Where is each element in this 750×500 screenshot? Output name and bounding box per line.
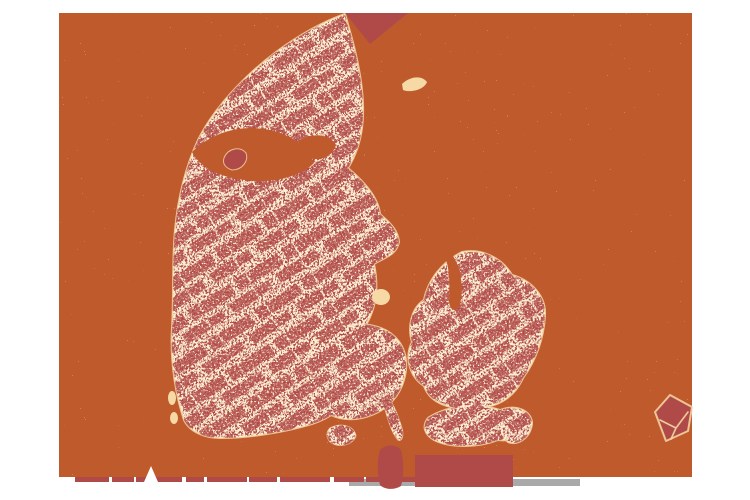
map-figure <box>0 0 750 500</box>
west-coast-islet <box>170 412 178 424</box>
german-coast-blob <box>378 446 404 489</box>
denmark-speckle-map <box>0 0 750 500</box>
samso-island <box>372 289 390 305</box>
german-coast-block <box>415 455 513 487</box>
west-coast-islet <box>168 391 176 405</box>
